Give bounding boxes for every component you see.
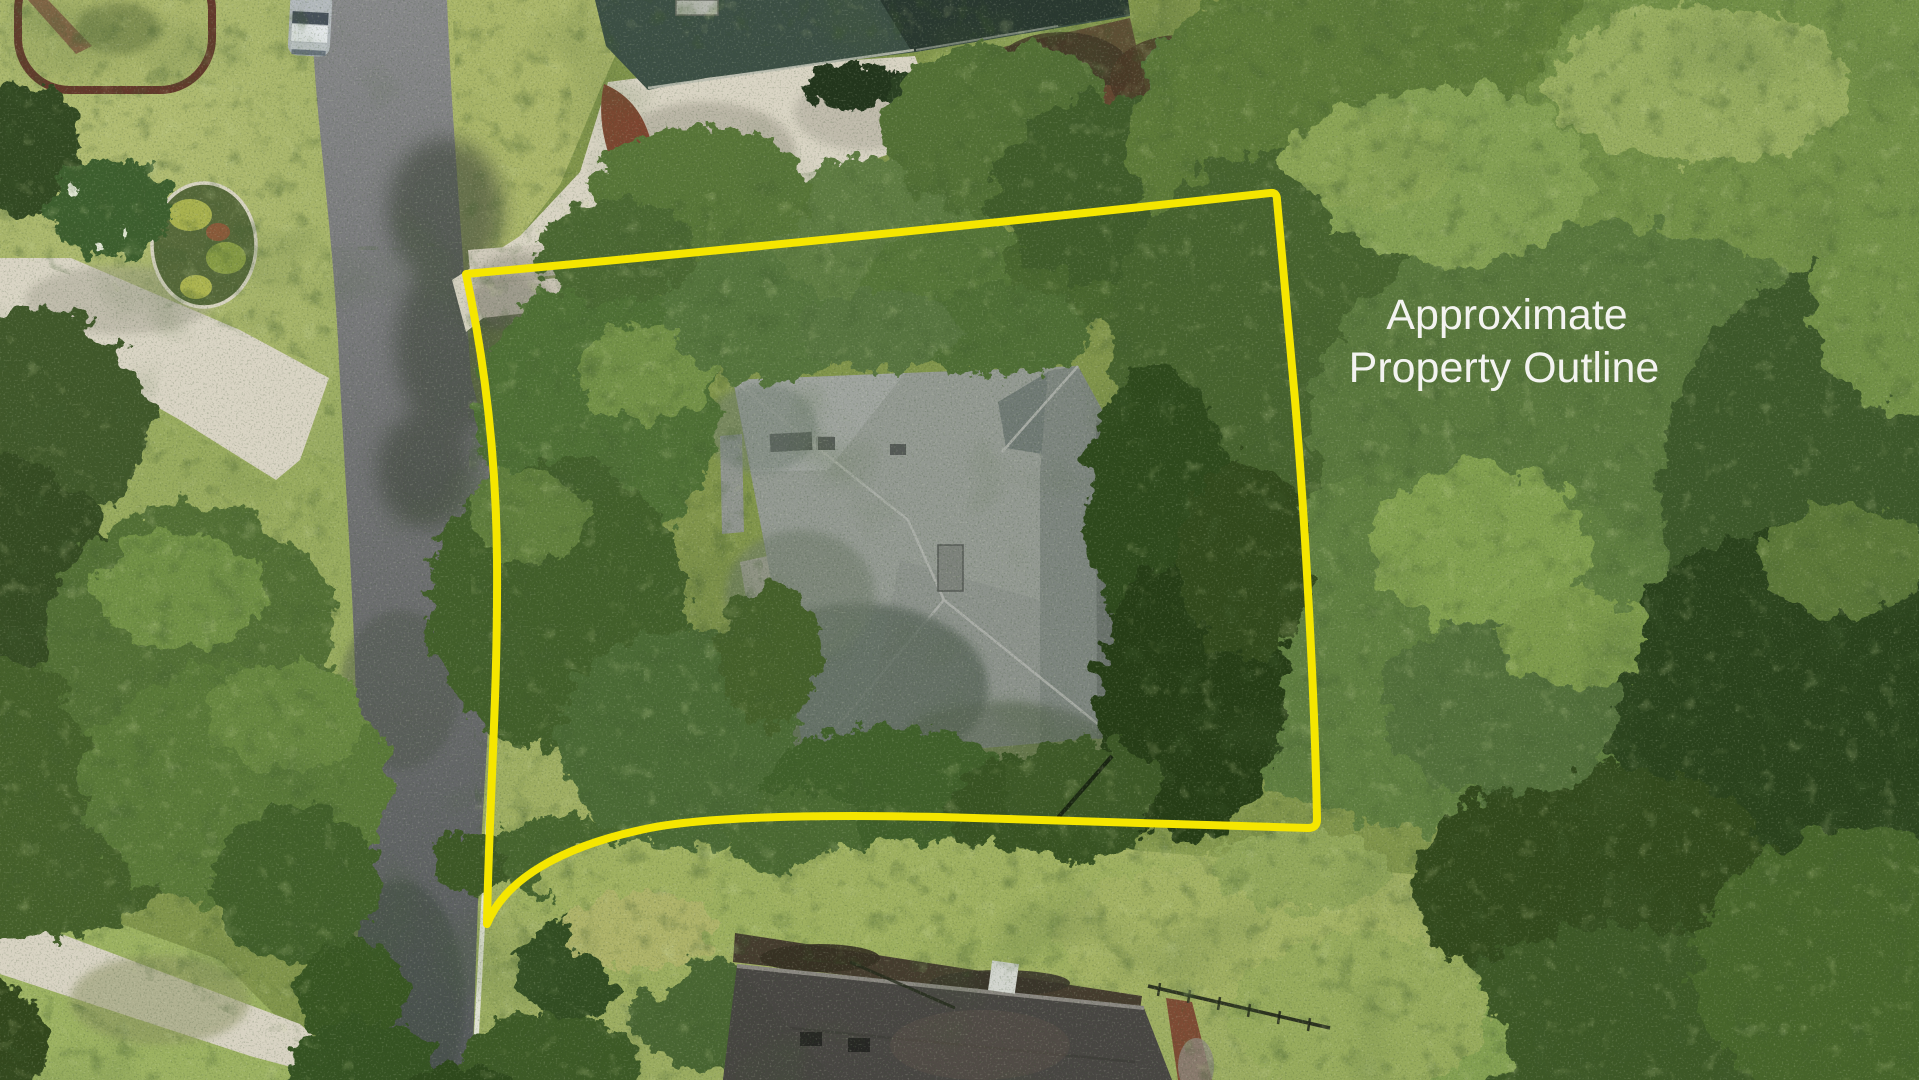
- svg-text:Approximate: Approximate: [1386, 291, 1627, 339]
- svg-text:Property Outline: Property Outline: [1349, 344, 1660, 392]
